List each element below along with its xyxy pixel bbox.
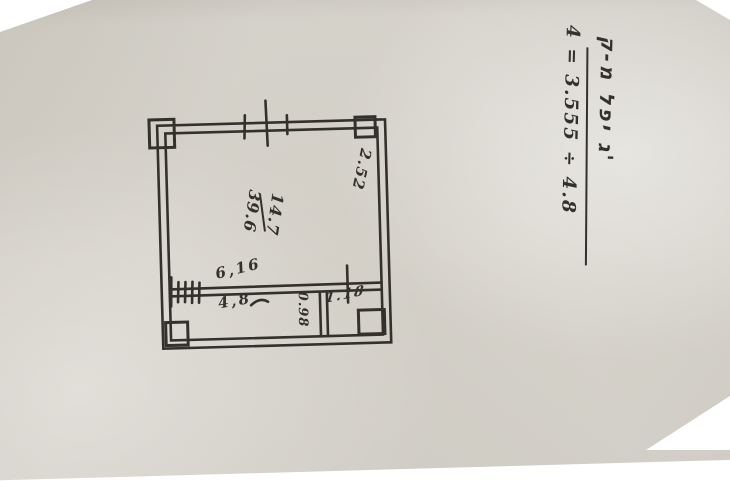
pen-flourish (251, 300, 268, 305)
paper-sheet: 14.7 39.6 2.52 6,16 4,8 0.98 1.18 ק-מ לפ… (0, 0, 730, 481)
hatch-mark (198, 283, 200, 303)
floor-plan-drawing (0, 0, 730, 460)
hatch-mark (191, 282, 193, 303)
hatch-mark (184, 282, 186, 302)
window-center-line (265, 101, 267, 146)
partition-line (320, 292, 321, 336)
handwritten-note: ק-מ לפי ג' 4 = 3.555 ÷ 4.8 (555, 21, 621, 286)
hatch-mark (170, 277, 172, 306)
column-bottom-left (166, 322, 189, 346)
sketch-area: 14.7 39.6 2.52 6,16 4,8 0.98 1.18 ק-מ לפ… (0, 0, 730, 460)
note-title-text: ק-מ לפי ג' (593, 36, 620, 164)
hatch-mark (177, 282, 179, 302)
column-bottom-right (358, 309, 385, 334)
note-underline (585, 47, 589, 265)
window-tick-left (244, 115, 246, 138)
window-tick-right (287, 115, 288, 134)
dim-closet-width: 0.98 (295, 292, 309, 328)
